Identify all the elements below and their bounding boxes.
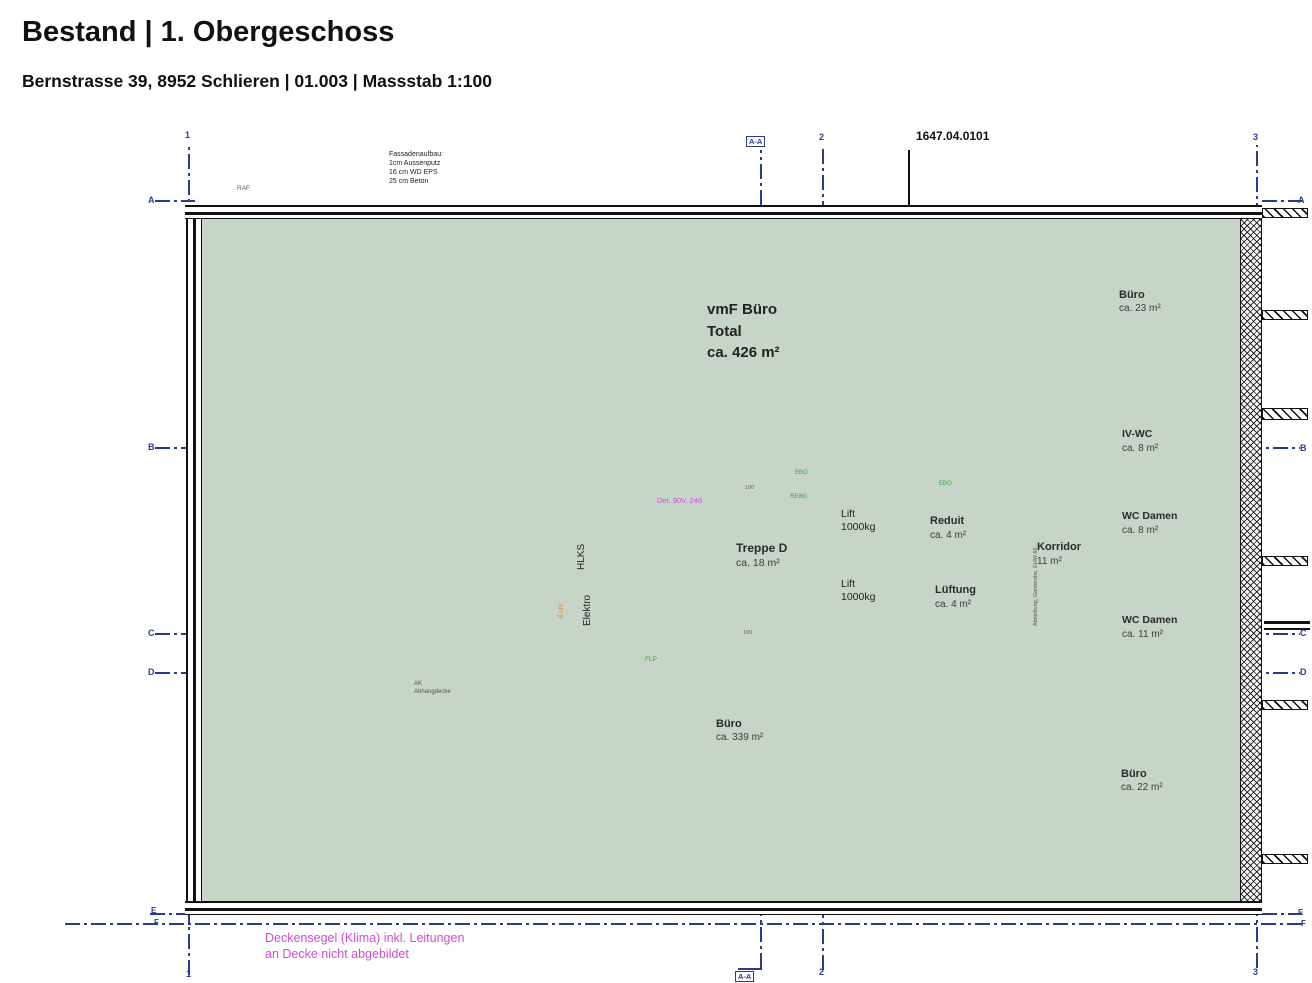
room-label-korridor-name: Korridor <box>1037 540 1081 554</box>
drawing-number: 1647.04.0101 <box>916 129 989 145</box>
room-label-buero339-name: Büro <box>716 717 742 731</box>
room-label-vmf-name: vmF Büro <box>707 300 777 320</box>
facade-note: Fassadenaufbau: 1cm Aussenputz 16 cm WD … <box>389 150 443 186</box>
balcony-slab <box>1262 208 1308 218</box>
hlks-label: HLKS <box>575 512 588 570</box>
lift2-label-name: Lift <box>841 578 855 592</box>
grid-label-2-bottom: 2 <box>819 967 824 977</box>
wall-note: Abstellung, Garderobe, EHW 60 <box>1033 540 1040 626</box>
grid-line-E <box>1262 913 1302 915</box>
section-line-AA <box>760 150 762 205</box>
room-label-buero23-area: ca. 23 m² <box>1119 302 1161 315</box>
grid-label-B-left: B <box>148 442 155 452</box>
door-width-bottom: 100 <box>743 630 752 637</box>
ebo-label-2: EBO <box>939 481 952 489</box>
grid-label-F-right: F <box>1301 919 1306 928</box>
grid-line-A <box>1262 200 1302 202</box>
room-label-reduit-area: ca. 4 m² <box>930 529 966 542</box>
balcony-slab <box>1262 854 1308 864</box>
ak-abhangdecke-label: AK Abhangdecke <box>414 681 451 697</box>
grid-label-E-right: E <box>1298 908 1303 917</box>
euv-label: E-UV <box>559 590 567 618</box>
raf-label: RAF <box>237 185 250 193</box>
room-label-wcdamen2-area: ca. 11 m² <box>1122 628 1163 641</box>
lift1-label-capacity: 1000kg <box>841 521 875 535</box>
grid-line-F <box>65 923 1305 925</box>
grid-label-A-left: A <box>148 195 155 205</box>
room-label-korridor-area: 11 m² <box>1037 555 1062 568</box>
lift1-label-name: Lift <box>841 508 855 522</box>
room-label-buero23-name: Büro <box>1119 288 1145 302</box>
floor-plan: ↑↑↓↓ <box>0 0 1312 983</box>
room-label-buero22-area: ca. 22 m² <box>1121 781 1163 794</box>
elektro-label: Elektro <box>581 582 594 626</box>
balcony-slab <box>1262 310 1308 320</box>
room-label-wcdamen1-name: WC Damen <box>1122 510 1177 524</box>
right-wall <box>1240 205 1262 915</box>
lift2-label-capacity: 1000kg <box>841 591 875 605</box>
section-marker-top: A-A <box>746 136 765 147</box>
grid-label-D-right: D <box>1300 667 1307 677</box>
grid-label-E-left: E <box>151 906 156 915</box>
room-label-buero22-name: Büro <box>1121 767 1147 781</box>
grid-label-F-left: F <box>154 918 159 927</box>
left-wall-window-band <box>186 205 202 915</box>
room-label-ivwc-area: ca. 8 m² <box>1122 442 1158 455</box>
bottom-wall-window-band <box>185 901 1262 915</box>
balcony-slab <box>1262 408 1308 420</box>
section-line-AA <box>760 913 762 968</box>
ceiling-note: Deckensegel (Klima) inkl. Leitungen an D… <box>265 930 464 963</box>
grid-label-1-top: 1 <box>185 130 190 140</box>
grid-label-D-left: D <box>148 667 155 677</box>
room-label-lueftung-area: ca. 4 m² <box>935 598 971 611</box>
room-label-treppe-area: ca. 18 m² <box>736 557 780 571</box>
grid-label-C-left: C <box>148 628 155 638</box>
room-label-vmf-area: ca. 426 m² <box>707 343 780 363</box>
detail-tag: Det. 90V. 246 <box>657 496 702 506</box>
grid-line-A <box>155 200 195 202</box>
balcony-slab <box>1262 556 1308 566</box>
grid-label-2-top: 2 <box>819 132 824 142</box>
room-label-reduit-name: Reduit <box>930 514 964 528</box>
room-label-buero339-area: ca. 339 m² <box>716 731 763 744</box>
grid-label-3-top: 3 <box>1253 132 1258 142</box>
door-width-top: 100 <box>745 485 754 492</box>
grid-label-A-right: A <box>1298 195 1305 205</box>
room-label-wcdamen2-name: WC Damen <box>1122 614 1177 628</box>
room-label-wcdamen1-area: ca. 8 m² <box>1122 524 1158 537</box>
grid-label-1-bottom: 1 <box>186 969 191 979</box>
top-wall-window-band <box>185 205 1262 219</box>
room-label-treppe-name: Treppe D <box>736 541 787 557</box>
room-label-lueftung-name: Lüftung <box>935 583 976 597</box>
rei60-label: REI60 <box>790 494 807 502</box>
flp-label: FLP <box>645 656 657 664</box>
grid-label-C-right: C <box>1300 628 1307 638</box>
section-marker-bottom: A-A <box>735 971 754 982</box>
ebo-label-1: EBO <box>795 470 808 478</box>
room-label-ivwc-name: IV-WC <box>1122 428 1152 442</box>
grid-label-3-bottom: 3 <box>1253 967 1258 977</box>
section-tick <box>738 968 762 970</box>
balcony-slab <box>1262 700 1308 710</box>
room-label-vmf-total: Total <box>707 322 742 342</box>
slab-line <box>1264 621 1310 624</box>
grid-label-B-right: B <box>1300 443 1307 453</box>
